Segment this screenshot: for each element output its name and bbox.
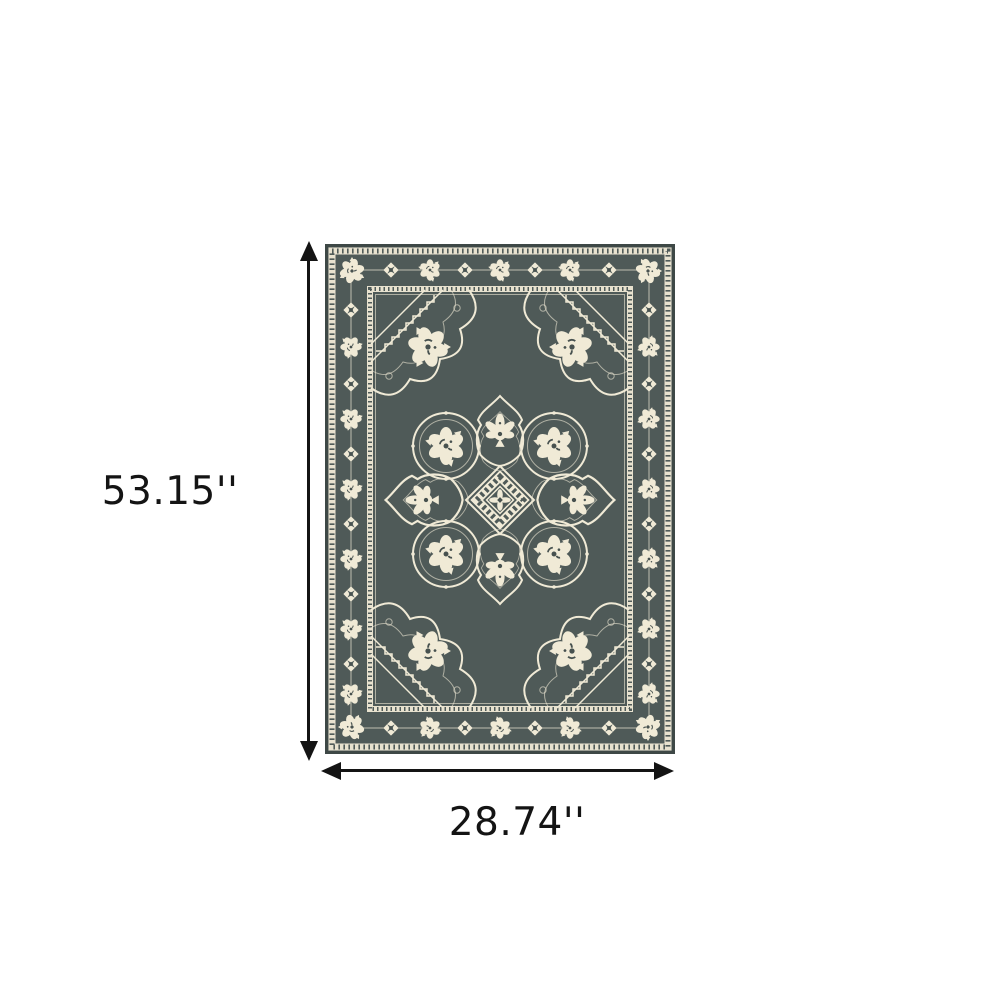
height-label: 53.15''	[75, 469, 265, 514]
arrow-left-icon	[318, 762, 341, 780]
width-label: 28.74''	[422, 800, 612, 845]
height-dimension-arrow	[299, 238, 318, 764]
arrow-right-icon	[654, 762, 677, 780]
rug-image	[325, 244, 675, 754]
vertical-dimension-line	[307, 261, 310, 741]
width-dimension-arrow	[318, 761, 677, 780]
product-dimension-image: 53.15'' 28.74''	[0, 0, 1000, 1000]
rug-center-medallion	[386, 396, 615, 604]
arrow-down-icon	[300, 741, 318, 764]
horizontal-dimension-line	[341, 769, 654, 772]
arrow-up-icon	[300, 238, 318, 261]
